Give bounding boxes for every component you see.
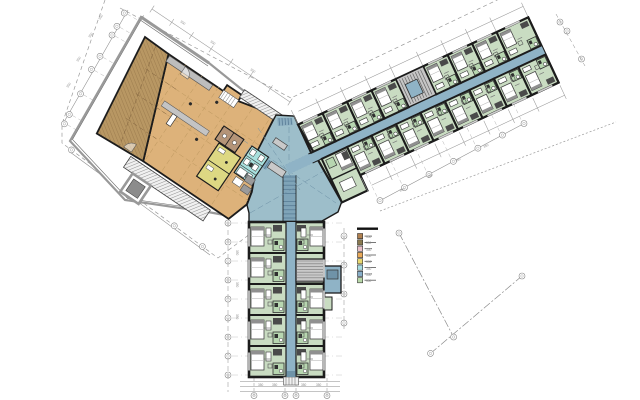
svg-text:350: 350: [272, 383, 278, 387]
svg-text:350: 350: [235, 250, 239, 256]
svg-text:350: 350: [366, 241, 372, 245]
svg-text:350: 350: [366, 260, 372, 264]
svg-text:350: 350: [366, 235, 372, 239]
svg-text:350: 350: [366, 254, 372, 258]
svg-text:350: 350: [316, 383, 322, 387]
svg-text:350: 350: [258, 383, 264, 387]
svg-text:350: 350: [366, 273, 372, 277]
svg-text:350: 350: [366, 279, 372, 283]
svg-text:350: 350: [235, 314, 239, 320]
svg-text:350: 350: [366, 267, 372, 271]
svg-text:350: 350: [366, 248, 372, 252]
svg-text:350: 350: [235, 282, 239, 288]
svg-text:350: 350: [301, 383, 307, 387]
